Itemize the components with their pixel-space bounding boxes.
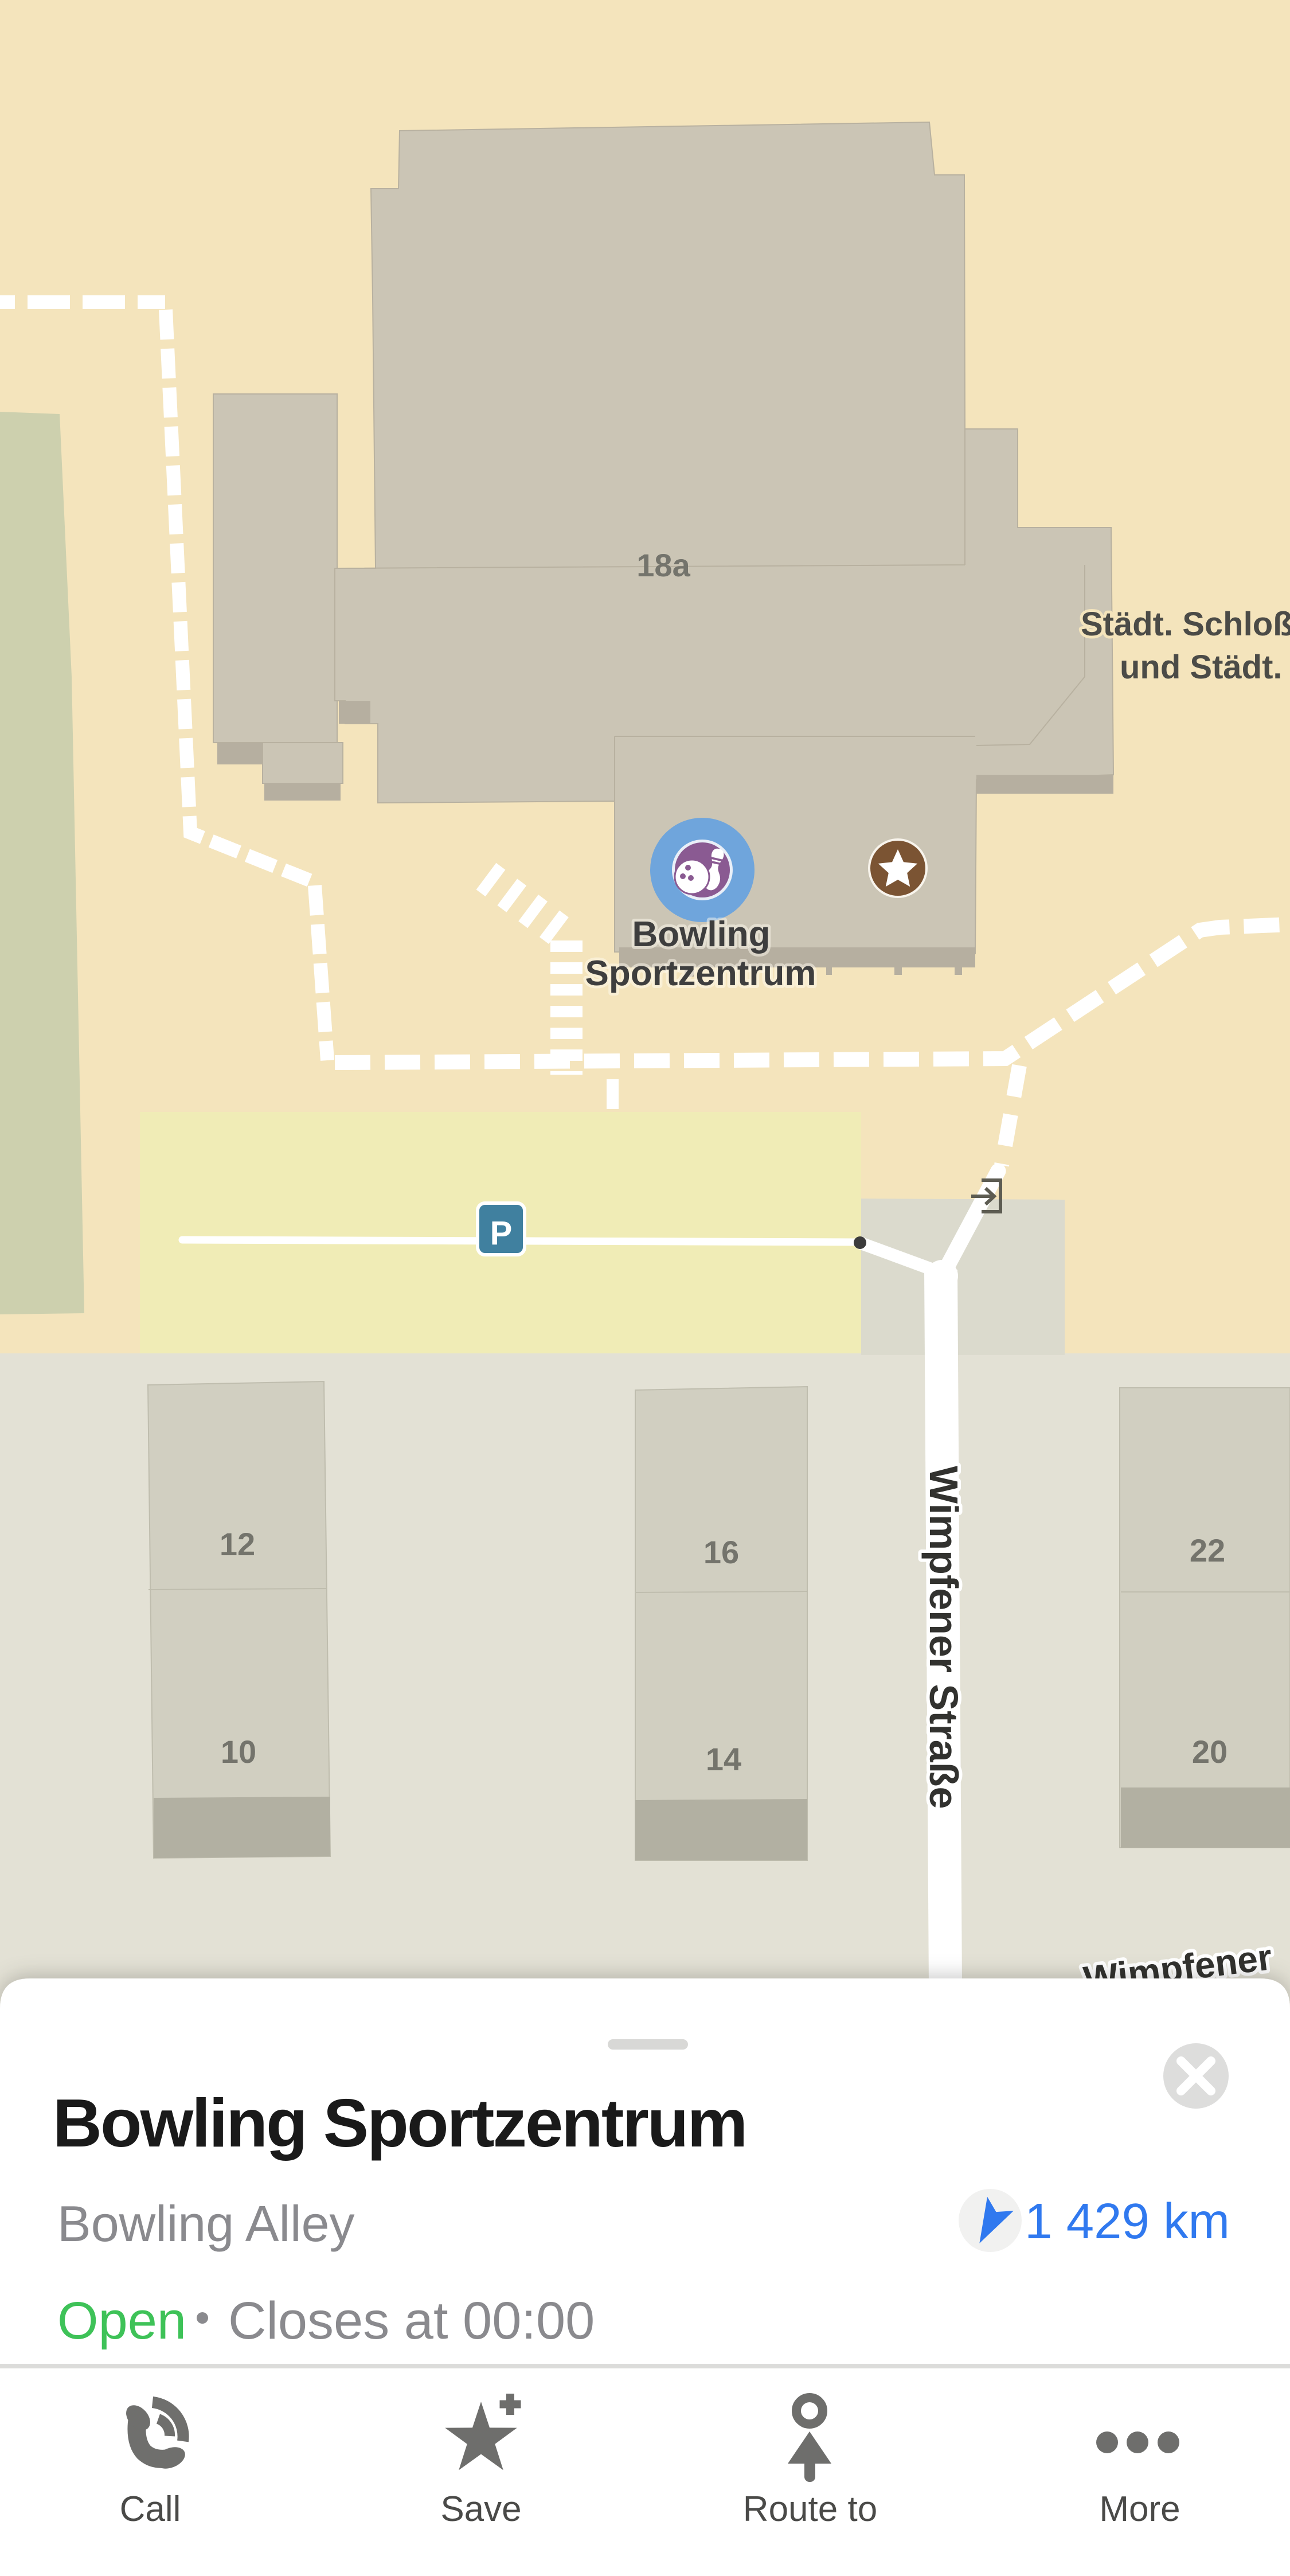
svg-text:Wimpfener Straße: Wimpfener Straße <box>921 1466 966 1809</box>
svg-text:Städt. Schloß: Städt. Schloß <box>1081 606 1290 643</box>
svg-text:18a: 18a <box>636 547 690 583</box>
svg-text:P: P <box>490 1215 513 1252</box>
svg-text:Open: Open <box>57 2292 186 2350</box>
svg-text:Bowling Alley: Bowling Alley <box>57 2195 355 2252</box>
svg-text:20: 20 <box>1192 1734 1228 1770</box>
svg-text:Sportzentrum: Sportzentrum <box>585 954 816 993</box>
svg-text:Save: Save <box>440 2489 521 2529</box>
svg-text:16: 16 <box>703 1534 739 1570</box>
svg-text:22: 22 <box>1190 1532 1225 1568</box>
svg-text:Call: Call <box>120 2489 181 2529</box>
svg-text:Bowling Sportzentrum: Bowling Sportzentrum <box>53 2085 746 2161</box>
svg-text:12: 12 <box>220 1526 255 1562</box>
svg-text:Closes at 00:00: Closes at 00:00 <box>228 2292 595 2350</box>
svg-text:More: More <box>1099 2489 1180 2529</box>
svg-text:14: 14 <box>706 1741 741 1777</box>
svg-text:und Städt.: und Städt. <box>1120 649 1283 686</box>
svg-text:Bowling: Bowling <box>632 915 770 954</box>
svg-text:1 429 km: 1 429 km <box>1025 2193 1230 2249</box>
svg-text:10: 10 <box>221 1734 256 1770</box>
svg-text:Route to: Route to <box>743 2489 877 2529</box>
